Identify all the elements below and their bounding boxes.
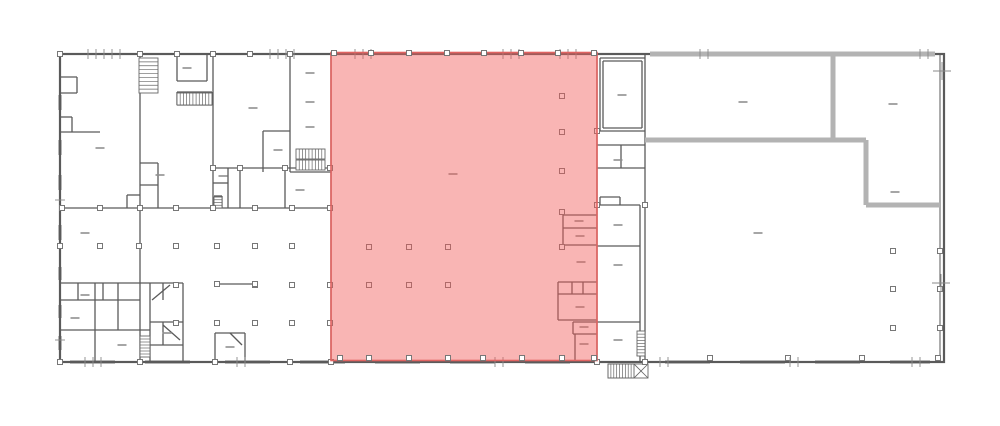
column-marker xyxy=(938,326,943,331)
stair-block xyxy=(608,364,634,378)
column-marker xyxy=(407,356,412,361)
column-marker xyxy=(253,244,258,249)
column-marker xyxy=(288,360,293,365)
column-marker xyxy=(938,249,943,254)
column-marker xyxy=(253,321,258,326)
floor-plan-drawing xyxy=(0,0,1000,426)
column-marker xyxy=(253,282,258,287)
column-marker xyxy=(860,356,865,361)
column-marker xyxy=(290,206,295,211)
column-marker xyxy=(520,356,525,361)
column-marker xyxy=(519,51,524,56)
column-marker xyxy=(253,206,258,211)
column-marker xyxy=(288,52,293,57)
column-marker xyxy=(58,244,63,249)
column-marker xyxy=(592,356,597,361)
column-marker xyxy=(174,244,179,249)
column-marker xyxy=(215,321,220,326)
column-marker xyxy=(643,360,648,365)
column-marker xyxy=(446,356,451,361)
column-marker xyxy=(58,360,63,365)
column-marker xyxy=(290,321,295,326)
column-marker xyxy=(138,52,143,57)
column-marker xyxy=(174,206,179,211)
column-marker xyxy=(369,51,374,56)
column-marker xyxy=(708,356,713,361)
column-marker xyxy=(174,283,179,288)
column-marker xyxy=(481,356,486,361)
column-marker xyxy=(175,52,180,57)
column-marker xyxy=(98,206,103,211)
column-marker xyxy=(936,356,941,361)
column-marker xyxy=(445,51,450,56)
column-marker xyxy=(367,356,372,361)
column-marker xyxy=(213,360,218,365)
column-marker xyxy=(938,287,943,292)
column-marker xyxy=(643,203,648,208)
column-marker xyxy=(137,244,142,249)
column-marker xyxy=(138,206,143,211)
column-marker xyxy=(174,321,179,326)
column-marker xyxy=(215,244,220,249)
column-marker xyxy=(482,51,487,56)
column-marker xyxy=(60,206,65,211)
column-marker xyxy=(332,51,337,56)
column-marker xyxy=(211,166,216,171)
column-marker xyxy=(290,244,295,249)
column-marker xyxy=(891,287,896,292)
floor-plan-canvas xyxy=(0,0,1000,426)
column-marker xyxy=(556,51,561,56)
column-marker xyxy=(248,52,253,57)
column-marker xyxy=(891,326,896,331)
stair-block xyxy=(296,160,325,170)
column-marker xyxy=(58,52,63,57)
column-marker xyxy=(98,244,103,249)
stair-block xyxy=(296,149,325,159)
stair-block xyxy=(177,93,212,105)
column-marker xyxy=(138,360,143,365)
column-marker xyxy=(592,51,597,56)
column-marker xyxy=(560,356,565,361)
column-marker xyxy=(891,249,896,254)
column-marker xyxy=(407,51,412,56)
highlighted-zone[interactable] xyxy=(331,53,597,361)
column-marker xyxy=(283,166,288,171)
column-marker xyxy=(338,356,343,361)
column-marker xyxy=(238,166,243,171)
column-marker xyxy=(290,283,295,288)
column-marker xyxy=(211,52,216,57)
column-marker xyxy=(215,282,220,287)
stair-block xyxy=(139,58,158,93)
column-marker xyxy=(211,206,216,211)
